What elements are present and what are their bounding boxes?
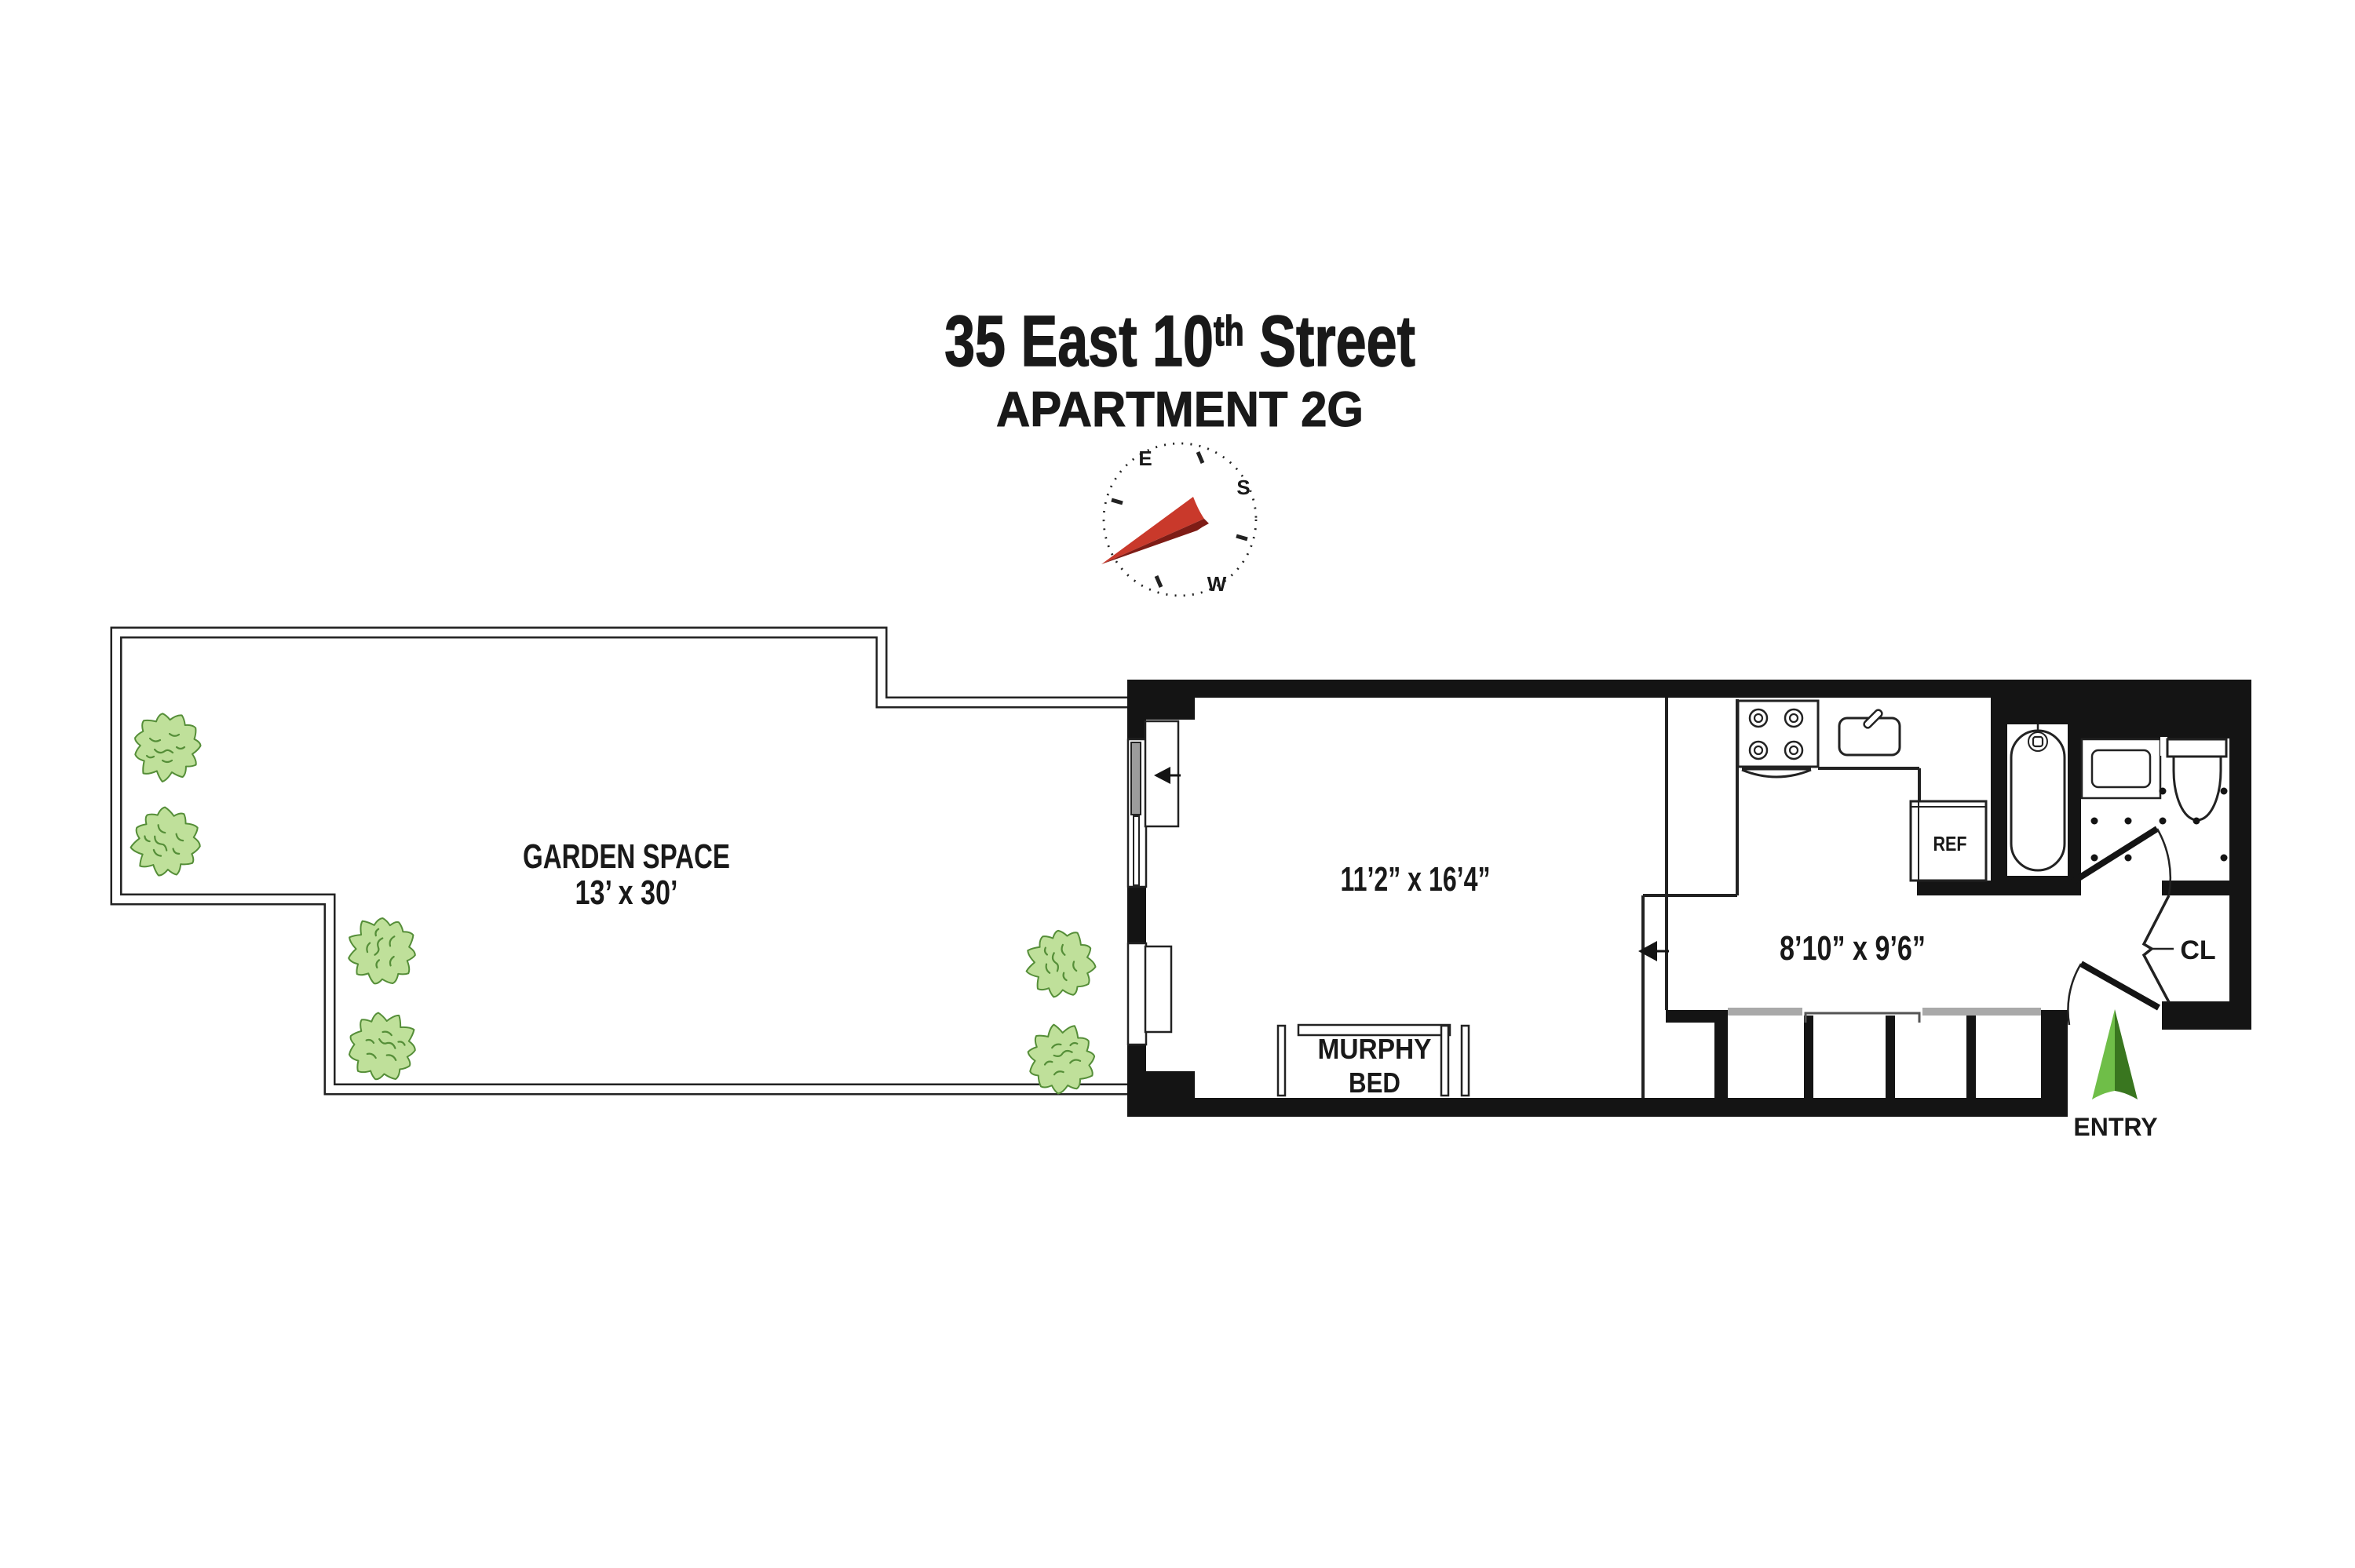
svg-text:8’10” x 9’6”: 8’10” x 9’6” (1780, 929, 1926, 968)
svg-text:11’2” x 16’4”: 11’2” x 16’4” (1341, 860, 1491, 899)
svg-text:W: W (1207, 572, 1227, 596)
svg-text:APARTMENT 2G: APARTMENT 2G (996, 382, 1364, 437)
svg-text:GARDEN SPACE: GARDEN SPACE (523, 837, 730, 876)
svg-text:E: E (1138, 447, 1152, 470)
svg-text:S: S (1236, 476, 1250, 499)
svg-text:35 East 10th Street: 35 East 10th Street (944, 301, 1415, 381)
svg-text:ENTRY: ENTRY (2073, 1113, 2157, 1141)
svg-text:BED: BED (1349, 1067, 1400, 1099)
svg-text:13’ x 30’: 13’ x 30’ (575, 873, 678, 912)
svg-text:CL: CL (2180, 935, 2215, 965)
svg-text:MURPHY: MURPHY (1318, 1033, 1432, 1065)
svg-text:REF: REF (1933, 832, 1967, 855)
